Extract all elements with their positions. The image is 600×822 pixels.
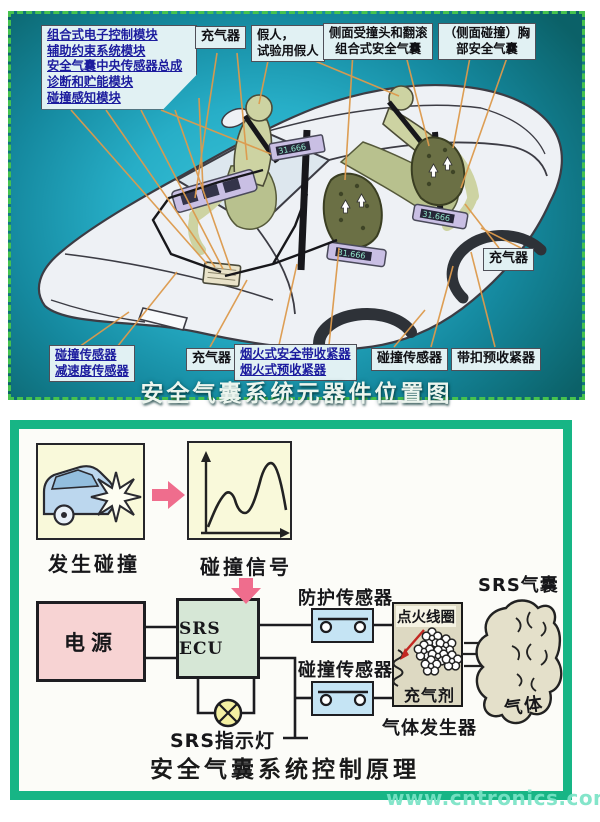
watermark: www.cntronics.com	[386, 786, 600, 810]
label-line: 辅助约束系统模块	[47, 44, 182, 60]
dummy-label: 假人， 试验用假人	[251, 25, 325, 62]
gas-label: 气体	[502, 689, 545, 720]
label-line: 假人，	[257, 28, 319, 44]
label-line: 碰撞传感器	[55, 348, 129, 364]
safing-sensor-label: 防护传感器	[298, 584, 393, 610]
safing-sensor-box	[311, 608, 374, 643]
inflator-label-top: 充气器	[195, 26, 246, 49]
label-line: 试验用假人	[257, 44, 319, 60]
gas-generator-label: 气体发生器	[372, 714, 487, 740]
label-line: 侧面受撞头和翻滚	[329, 26, 427, 42]
module-list-label: 组合式电子控制模块 辅助约束系统模块 安全气囊中央传感器总成 诊断和贮能模块 碰…	[41, 25, 197, 110]
top-panel-title: 安全气囊系统元器件位置图	[11, 374, 582, 408]
bottom-panel-title: 安全气囊系统控制原理	[140, 750, 430, 784]
power-supply-box: 电源	[36, 601, 146, 682]
crash-illustration-box	[36, 443, 145, 540]
label-line: 诊断和贮能模块	[47, 75, 182, 91]
indicator-lamp-label: SRS指示灯	[170, 726, 275, 753]
ignition-coil-label: 点火线圈	[396, 606, 456, 627]
label-line: 烟火式安全带收紧器	[240, 347, 351, 363]
signal-caption: 碰撞信号	[196, 551, 296, 580]
side-rollover-airbag-label: 侧面受撞头和翻滚 组合式安全气囊	[323, 23, 433, 60]
inflator-label-right: 充气器	[483, 248, 534, 271]
signal-graph-box	[187, 441, 292, 540]
label-line: 组合式电子控制模块	[47, 28, 182, 44]
label-line: 安全气囊中央传感器总成	[47, 59, 182, 75]
inflator-label-bottom: 充气器	[186, 348, 237, 371]
inflation-agent-label: 充气剂	[404, 682, 455, 706]
buckle-pretensioner-label: 带扣预收紧器	[451, 348, 541, 371]
label-line: （侧面碰撞）胸	[444, 26, 530, 42]
chest-airbag-label: （侧面碰撞）胸 部安全气囊	[438, 23, 536, 60]
label-line: 组合式安全气囊	[329, 42, 427, 58]
crash-caption: 发生碰撞	[44, 548, 144, 577]
crash-sensor-label-bottom: 碰撞传感器	[371, 348, 448, 371]
label-line: 碰撞感知模块	[47, 91, 182, 107]
component-location-panel: 31.666 31.666 31.666	[8, 11, 585, 400]
airbag-diagram-page: 31.666 31.666 31.666	[0, 0, 600, 822]
label-line: 部安全气囊	[444, 42, 530, 58]
srs-ecu-box: SRS ECU	[176, 598, 260, 679]
srs-airbag-label: SRS气囊	[478, 571, 559, 597]
crash-sensor-label: 碰撞传感器	[298, 656, 393, 682]
crash-sensor-box	[311, 681, 374, 716]
